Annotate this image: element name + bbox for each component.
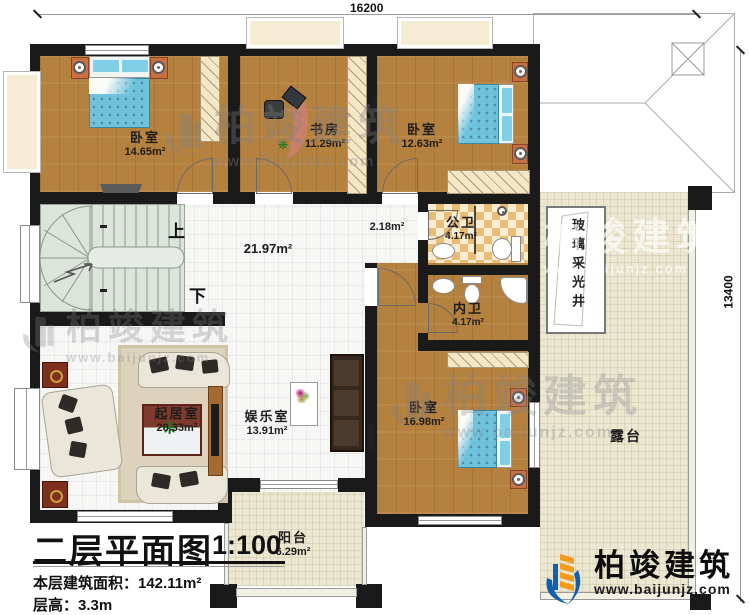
stairs-up-label: 上	[168, 217, 185, 242]
lamp-icon	[512, 473, 525, 486]
sofa-cushion	[151, 473, 171, 490]
staircase	[40, 204, 185, 312]
wall	[213, 192, 255, 204]
sink	[432, 243, 455, 259]
sliding-door-balcony	[260, 480, 338, 489]
room-label-terrace: 露台	[600, 429, 652, 445]
wall	[418, 275, 428, 303]
decor-dots	[296, 389, 310, 403]
balcony-rail-front	[236, 588, 357, 597]
room-label-corridor: 2.18m²	[352, 221, 422, 233]
sofa-cushion	[201, 359, 218, 374]
corner-cabinet	[42, 481, 68, 508]
wall	[418, 204, 428, 212]
plan-scale: 1:100	[212, 530, 281, 561]
wall	[30, 192, 177, 204]
dresser-bedroom1	[100, 184, 142, 193]
stair-mark-up	[100, 225, 107, 228]
bay-window-bedroom1-left	[4, 72, 40, 172]
bay-window-study	[247, 18, 343, 48]
window-bedroom1-top	[85, 45, 149, 55]
room-label-study: 书房11.29m²	[284, 123, 366, 150]
ent-sofa-cushion	[334, 390, 359, 416]
lamp-icon	[514, 65, 527, 78]
lamp-icon	[514, 147, 527, 160]
company-url: www.baijunjz.com	[594, 581, 734, 597]
wardrobe-bedroom1	[200, 56, 220, 142]
pillow	[501, 87, 513, 114]
wall	[228, 44, 240, 192]
room-label-bedroom3: 卧室16.98m²	[383, 401, 465, 428]
lamp-icon	[73, 61, 86, 74]
wall	[232, 478, 260, 492]
room-label-public-bath: 公卫4.17m²	[425, 216, 497, 242]
pillow	[92, 59, 120, 73]
stair-mark-down	[100, 289, 107, 292]
pillow	[501, 115, 513, 142]
pillow	[499, 440, 511, 466]
pillow	[121, 59, 149, 73]
floor-area-line: 本层建筑面积：142.11m²	[33, 572, 201, 593]
title-rule-thin	[33, 566, 285, 567]
window-living-bottom	[77, 511, 173, 522]
glass-lightwell: 玻璃采光井	[546, 206, 606, 334]
wardrobe-bedroom2	[447, 170, 530, 194]
window-bedroom3-bottom	[418, 516, 502, 525]
desk-chair	[264, 100, 284, 119]
pillow	[499, 413, 511, 439]
column	[356, 584, 382, 608]
room-label-private-bath: 内卫4.17m²	[432, 302, 504, 328]
room-label-bedroom2: 卧室12.63m²	[381, 123, 463, 150]
corner-cabinet	[42, 362, 68, 388]
sink	[432, 278, 455, 294]
balcony-rail-right	[362, 527, 367, 585]
wall	[338, 478, 366, 492]
wall	[365, 263, 377, 268]
lamp-icon	[152, 61, 165, 74]
wall	[365, 306, 377, 514]
roof-plan	[533, 13, 735, 193]
room-label-entertainment: 娱乐室13.91m²	[228, 410, 306, 437]
stairs-down-label: 下	[189, 282, 206, 307]
wall	[418, 240, 428, 265]
bay-window-bedroom2	[398, 18, 492, 48]
ent-sofa-cushion	[334, 360, 359, 386]
floor-plan: 玻璃采光井 上 下	[0, 0, 750, 615]
wall-tv-bedroom2	[370, 95, 377, 122]
column	[210, 584, 237, 608]
window-stairs-left	[20, 225, 40, 303]
ent-sofa-cushion	[334, 420, 359, 446]
company-name: 柏竣建筑	[594, 550, 734, 581]
sofa-cushion	[69, 441, 87, 459]
wardrobe-bedroom3	[447, 352, 529, 368]
wall	[418, 340, 540, 351]
company-logo-icon	[540, 550, 586, 608]
wall	[418, 265, 540, 275]
window-living-left	[14, 388, 40, 470]
column	[688, 186, 712, 210]
lamp-icon	[512, 391, 525, 404]
wall	[30, 312, 225, 326]
sofa-cushion	[175, 355, 195, 371]
company-logo: 柏竣建筑 www.baijunjz.com	[540, 550, 734, 608]
toilet	[462, 276, 482, 284]
wall-tv-bedroom3	[368, 424, 375, 452]
wall	[418, 333, 428, 340]
window-bedroom3-right	[529, 402, 540, 468]
dimension-right-label: 13400	[722, 275, 736, 308]
title-rule	[33, 561, 285, 564]
floor-height-line: 层高：3.3m	[33, 594, 112, 615]
dimension-top-label: 16200	[350, 1, 383, 15]
room-label-bedroom1: 卧室14.65m²	[104, 131, 186, 158]
ceiling-lamp-icon	[497, 206, 507, 216]
terrace-parapet-right	[688, 192, 696, 600]
dimension-line-right	[740, 50, 741, 602]
room-label-living: 起居室20.33m²	[140, 407, 214, 434]
room-label-hall: 21.97m²	[230, 242, 306, 257]
bed-sheet-fold	[89, 78, 150, 94]
wall	[293, 192, 382, 204]
toilet	[511, 236, 521, 262]
roof-skylight	[672, 43, 704, 75]
lightwell-label: 玻璃采光井	[568, 218, 587, 313]
